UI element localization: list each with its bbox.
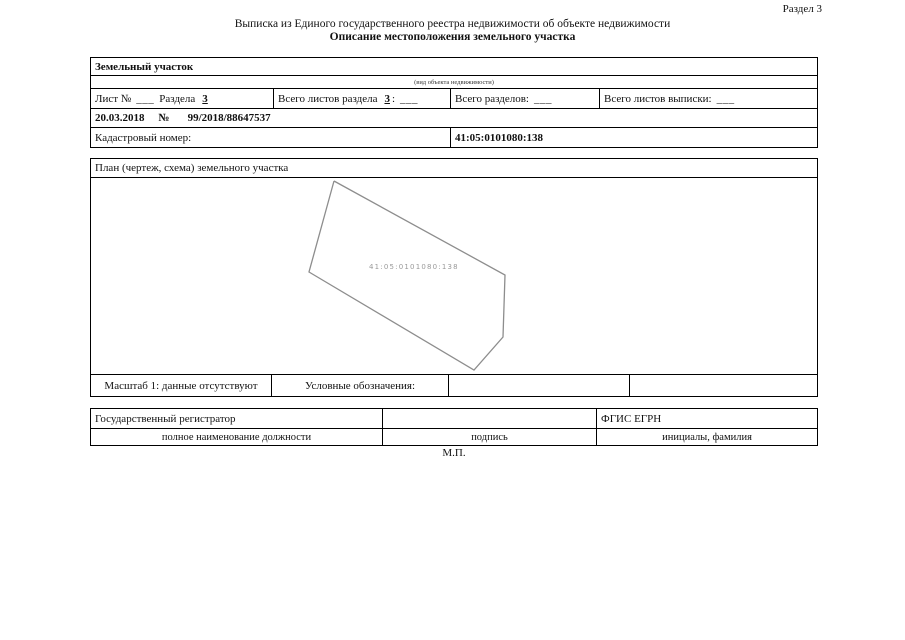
- sheet-number-cell: Лист № ___ Раздела 3: [91, 89, 273, 108]
- plan-title: План (чертеж, схема) земельного участка: [91, 159, 288, 177]
- scale-cell: Масштаб 1: данные отсутствуют: [91, 375, 271, 397]
- number-sign: №: [159, 112, 170, 124]
- sheet-label: Лист №: [95, 93, 131, 105]
- captions-row: полное наименование должности подпись ин…: [91, 428, 817, 446]
- signature-caption: подпись: [382, 429, 596, 446]
- cadastral-label: Кадастровый номер:: [91, 128, 450, 147]
- date-number-row: 20.03.2018 № 99/2018/88647537: [91, 108, 817, 127]
- sheet-section-value: 3: [200, 93, 210, 105]
- parcel-plan-svg: [91, 178, 816, 374]
- initials-caption: инициалы, фамилия: [596, 429, 817, 446]
- plan-drawing-area: 41:05:0101080:138: [91, 177, 817, 374]
- legend-cell: Условные обозначения:: [271, 375, 448, 397]
- signature-empty-cell: [382, 409, 596, 428]
- object-type-caption-row: (вид объекта недвижимости): [91, 75, 817, 88]
- registrar-row: Государственный регистратор ФГИС ЕГРН: [91, 409, 817, 428]
- object-type: Земельный участок: [91, 58, 193, 75]
- plan-title-row: План (чертеж, схема) земельного участка: [91, 159, 817, 177]
- sheets-total-blank: ___: [400, 93, 418, 105]
- object-type-caption: (вид объекта недвижимости): [414, 76, 494, 88]
- object-info-table: Земельный участок (вид объекта недвижимо…: [90, 57, 818, 148]
- legend-empty-cell-1: [448, 375, 629, 397]
- plan-footer-row: Масштаб 1: данные отсутствуют Условные о…: [91, 374, 817, 397]
- stamp-placeholder: М.П.: [90, 447, 818, 459]
- extract-date: 20.03.2018: [95, 112, 145, 124]
- sheet-counts-row: Лист № ___ Раздела 3 Всего листов раздел…: [91, 88, 817, 108]
- sheets-total-cell: Всего листов раздела 3 : ___: [273, 89, 450, 108]
- extract-sheets-label: Всего листов выписки:: [604, 93, 712, 105]
- sheets-total-colon: :: [392, 93, 395, 105]
- registrar-label: Государственный регистратор: [91, 409, 382, 428]
- extract-sheets-cell: Всего листов выписки: ___: [599, 89, 817, 108]
- document-page: Раздел 3 Выписка из Единого государствен…: [0, 0, 905, 640]
- parcel-polygon: [309, 181, 505, 370]
- sections-total-cell: Всего разделов: ___: [450, 89, 599, 108]
- cadastral-row: Кадастровый номер: 41:05:0101080:138: [91, 127, 817, 147]
- plan-table: План (чертеж, схема) земельного участка …: [90, 158, 818, 397]
- sections-total-blank: ___: [534, 93, 552, 105]
- legend-empty-cell-2: [629, 375, 817, 397]
- extract-number: 99/2018/88647537: [188, 112, 271, 124]
- position-caption: полное наименование должности: [91, 429, 382, 446]
- extract-sheets-blank: ___: [717, 93, 735, 105]
- date-number-cell: 20.03.2018 № 99/2018/88647537: [91, 109, 271, 127]
- system-label: ФГИС ЕГРН: [596, 409, 817, 428]
- registrar-table: Государственный регистратор ФГИС ЕГРН по…: [90, 408, 818, 446]
- sheet-section-label: Раздела: [159, 93, 195, 105]
- document-title: Выписка из Единого государственного реес…: [0, 18, 905, 30]
- sheets-total-value: 3: [382, 93, 392, 105]
- section-label: Раздел 3: [783, 3, 822, 15]
- sheet-blank: ___: [136, 93, 154, 105]
- document-subtitle: Описание местоположения земельного участ…: [0, 31, 905, 43]
- object-type-row: Земельный участок: [91, 58, 817, 75]
- cadastral-value: 41:05:0101080:138: [450, 128, 817, 147]
- sections-total-label: Всего разделов:: [455, 93, 529, 105]
- sheets-total-label: Всего листов раздела: [278, 93, 377, 105]
- parcel-cadastral-label: 41:05:0101080:138: [369, 263, 459, 271]
